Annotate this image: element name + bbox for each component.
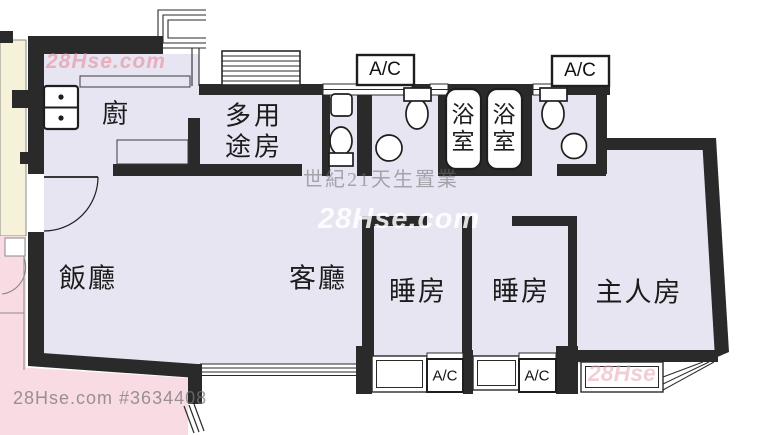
- floorplan-image: 28Hse.com 世紀21天生置業 28Hse.com 28Hse.com #…: [0, 0, 757, 435]
- wall-bedroom1-left: [362, 216, 374, 358]
- wall-strip-bottom-a: [113, 164, 302, 176]
- room-label-bathroom-1: 浴室: [452, 101, 475, 155]
- washbasin-icon: [562, 134, 587, 159]
- louver-window: [222, 51, 300, 85]
- washbasin-icon: [376, 135, 402, 161]
- neighbor-door-opening: [5, 238, 25, 256]
- room-label-kitchen: 廚: [102, 94, 128, 131]
- wall-bottom-pier-3: [556, 346, 578, 394]
- wall-master-top: [596, 138, 712, 150]
- room-label-master: 主人房: [596, 271, 683, 310]
- room-label-bedroom1: 睡房: [389, 270, 447, 309]
- neighbor-cream-area: [0, 40, 26, 236]
- wall-bedroom-divider: [462, 216, 472, 358]
- wall-left-upper: [28, 36, 44, 174]
- bedroom2-window-bay: [473, 356, 520, 390]
- room-label-living: 客廳: [289, 257, 347, 296]
- bedroom1-window-bay: [372, 356, 427, 392]
- room-label-dining: 飯廳: [59, 257, 117, 296]
- toilet-icon: [329, 127, 353, 166]
- kitchen-shelf: [80, 76, 190, 87]
- wall-left-pier: [12, 90, 28, 108]
- wall-master-left: [568, 216, 577, 358]
- wall-left-lower: [28, 232, 44, 364]
- wall-tub2-right: [522, 84, 532, 176]
- room-label-multipurpose-line2: 途房: [225, 127, 283, 164]
- room-label-bedroom2: 睡房: [492, 270, 550, 309]
- wall-bedroom2-top: [512, 216, 577, 226]
- wall-left-pier-small: [20, 152, 28, 164]
- watermark-brand-top: 28Hse.com: [46, 50, 166, 74]
- room-label-bathroom-2: 浴室: [493, 101, 516, 155]
- ac-label-bottom-2: A/C: [524, 368, 549, 385]
- wall-bottom-pier-2: [463, 350, 473, 394]
- neighbor-wall-stub: [0, 31, 13, 43]
- watermark-listing-number: 28Hse.com #3634408: [13, 388, 207, 409]
- wall-strip-bottom-c: [557, 164, 606, 176]
- washbasin-icon: [331, 94, 352, 116]
- kitchen-sink: [44, 86, 78, 129]
- living-bottom-window: [200, 364, 358, 376]
- ac-label-top-1: A/C: [369, 59, 401, 81]
- watermark-brand-bay: 28Hse: [588, 360, 656, 387]
- ac-label-bottom-1: A/C: [432, 368, 457, 385]
- wall-kitchen-stub: [188, 118, 200, 164]
- kitchen-counter: [117, 140, 188, 164]
- watermark-agency: 世紀21天生置業: [303, 163, 459, 192]
- ac-label-top-2: A/C: [564, 60, 596, 82]
- watermark-brand-center: 28Hse.com: [318, 203, 480, 236]
- wall-bath-right: [596, 84, 607, 174]
